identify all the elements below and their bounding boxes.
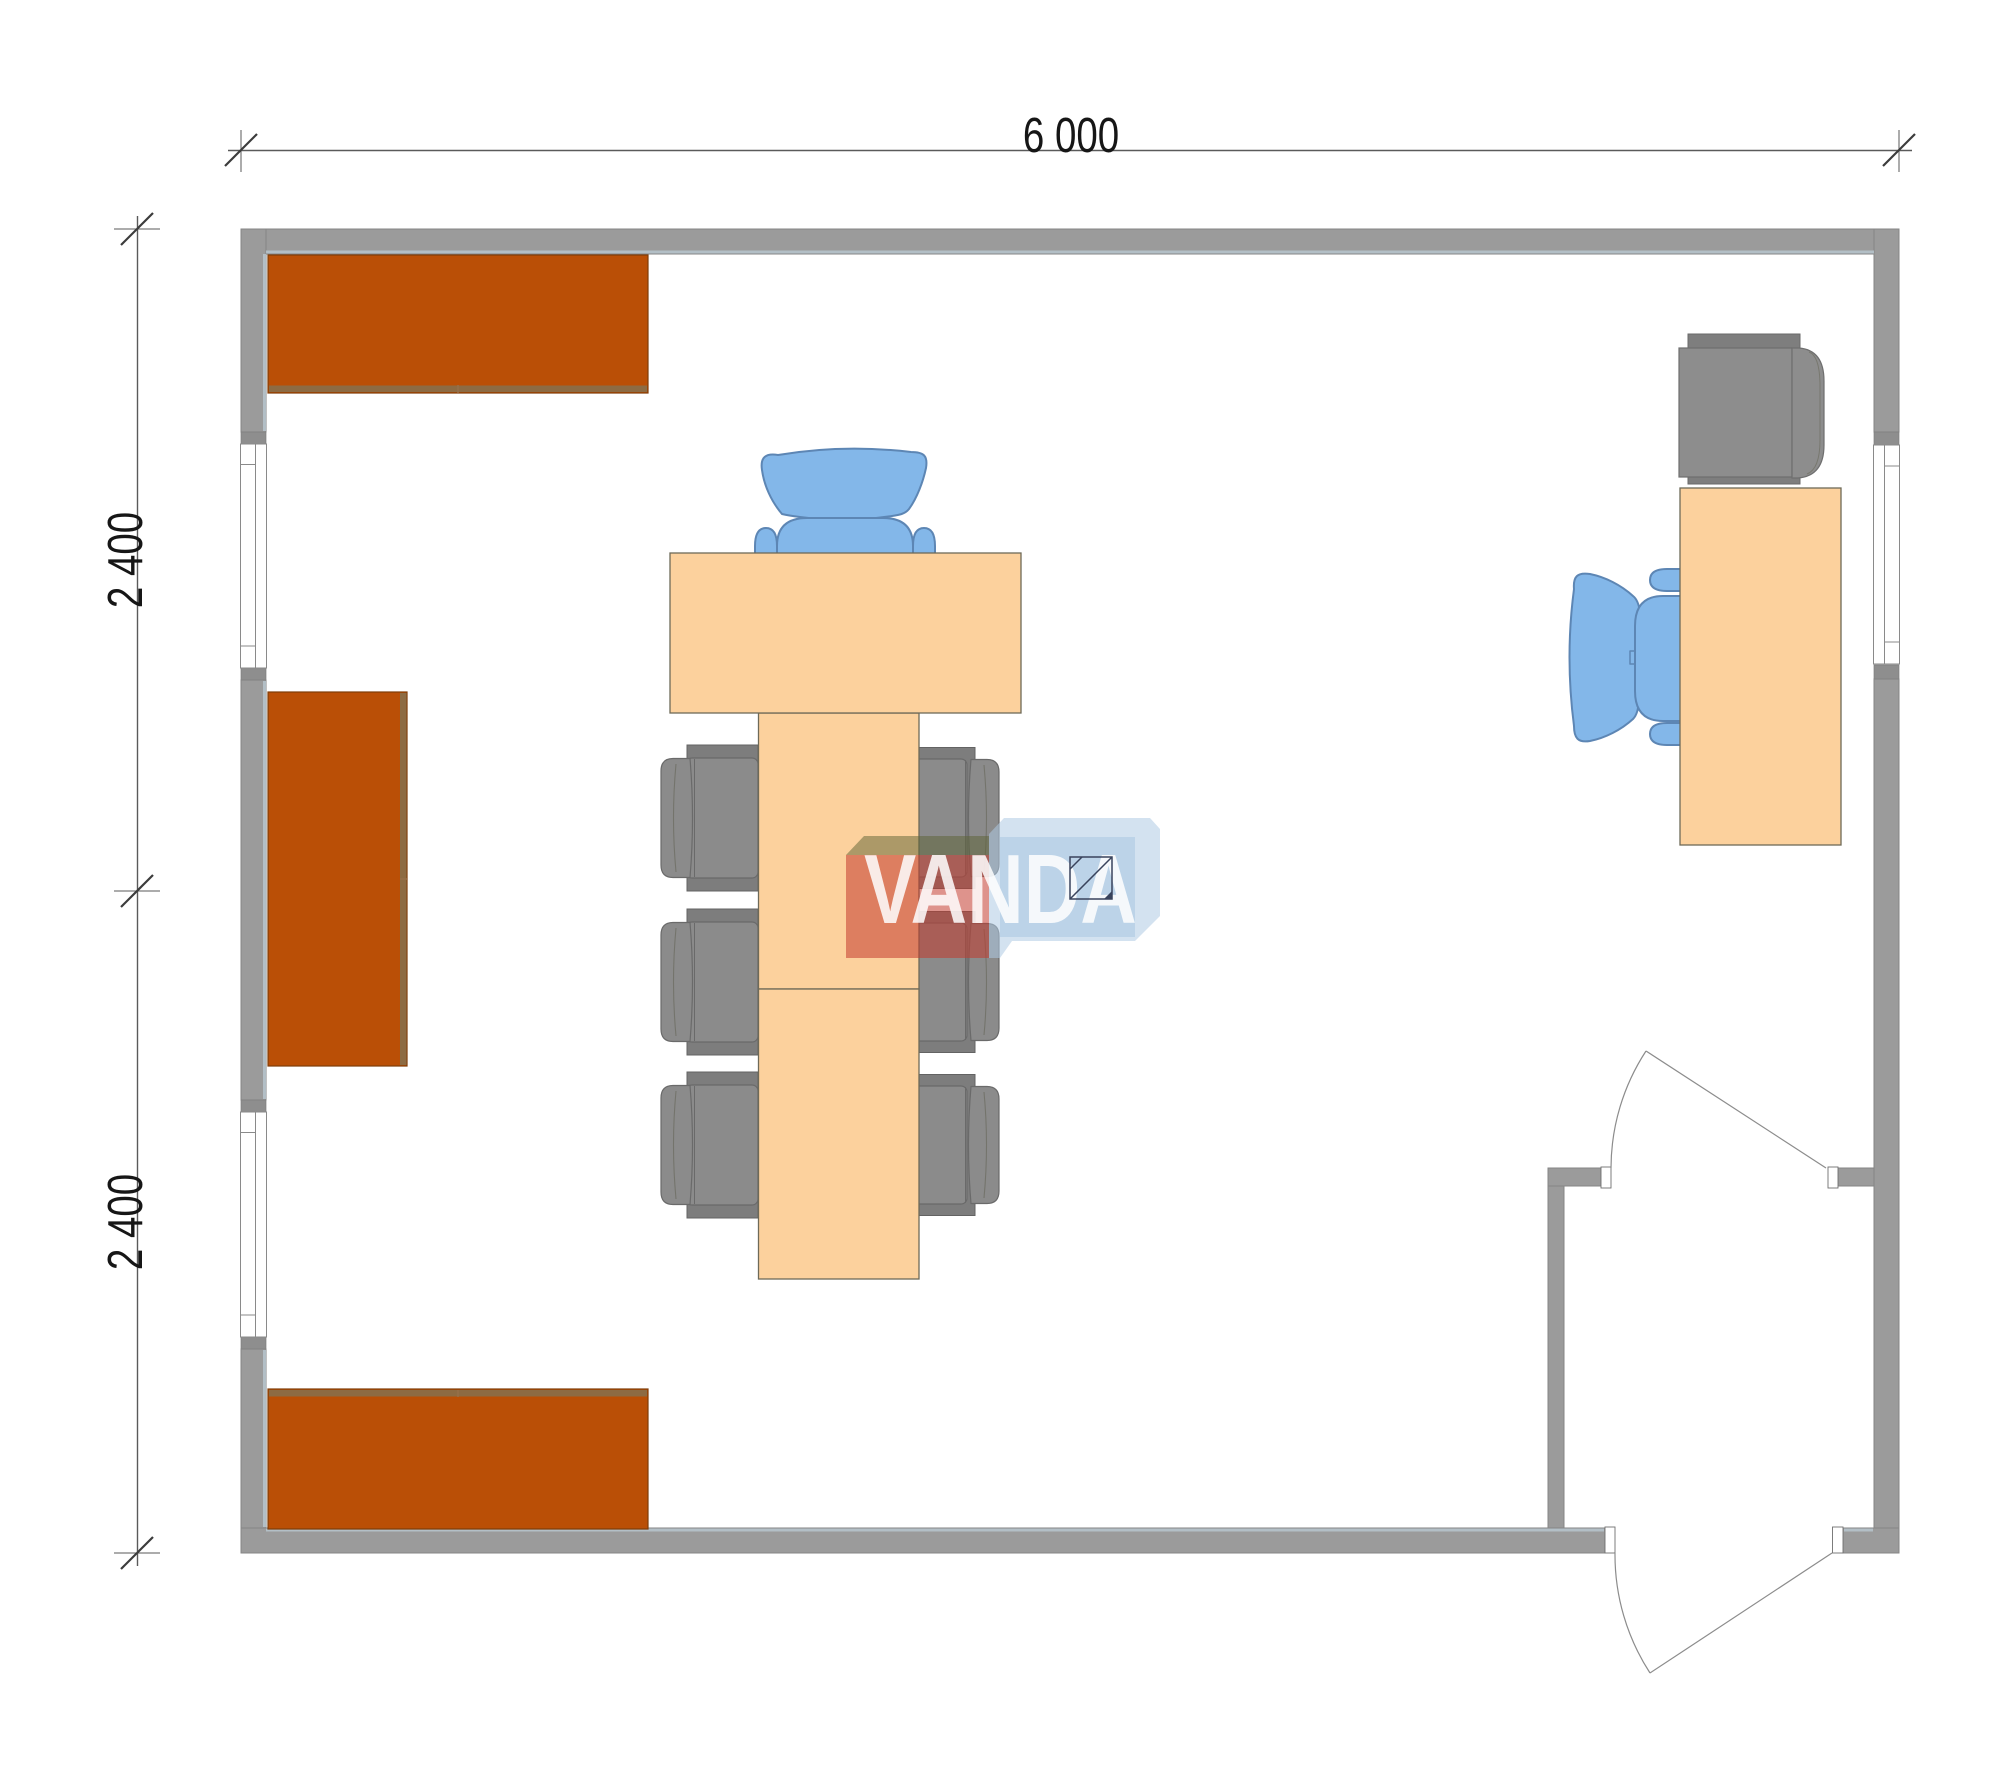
svg-text:6 000: 6 000 <box>1023 109 1119 163</box>
svg-text:VANDA: VANDA <box>864 835 1137 944</box>
svg-text:2 400: 2 400 <box>99 1174 153 1270</box>
svg-text:2 400: 2 400 <box>99 512 153 608</box>
